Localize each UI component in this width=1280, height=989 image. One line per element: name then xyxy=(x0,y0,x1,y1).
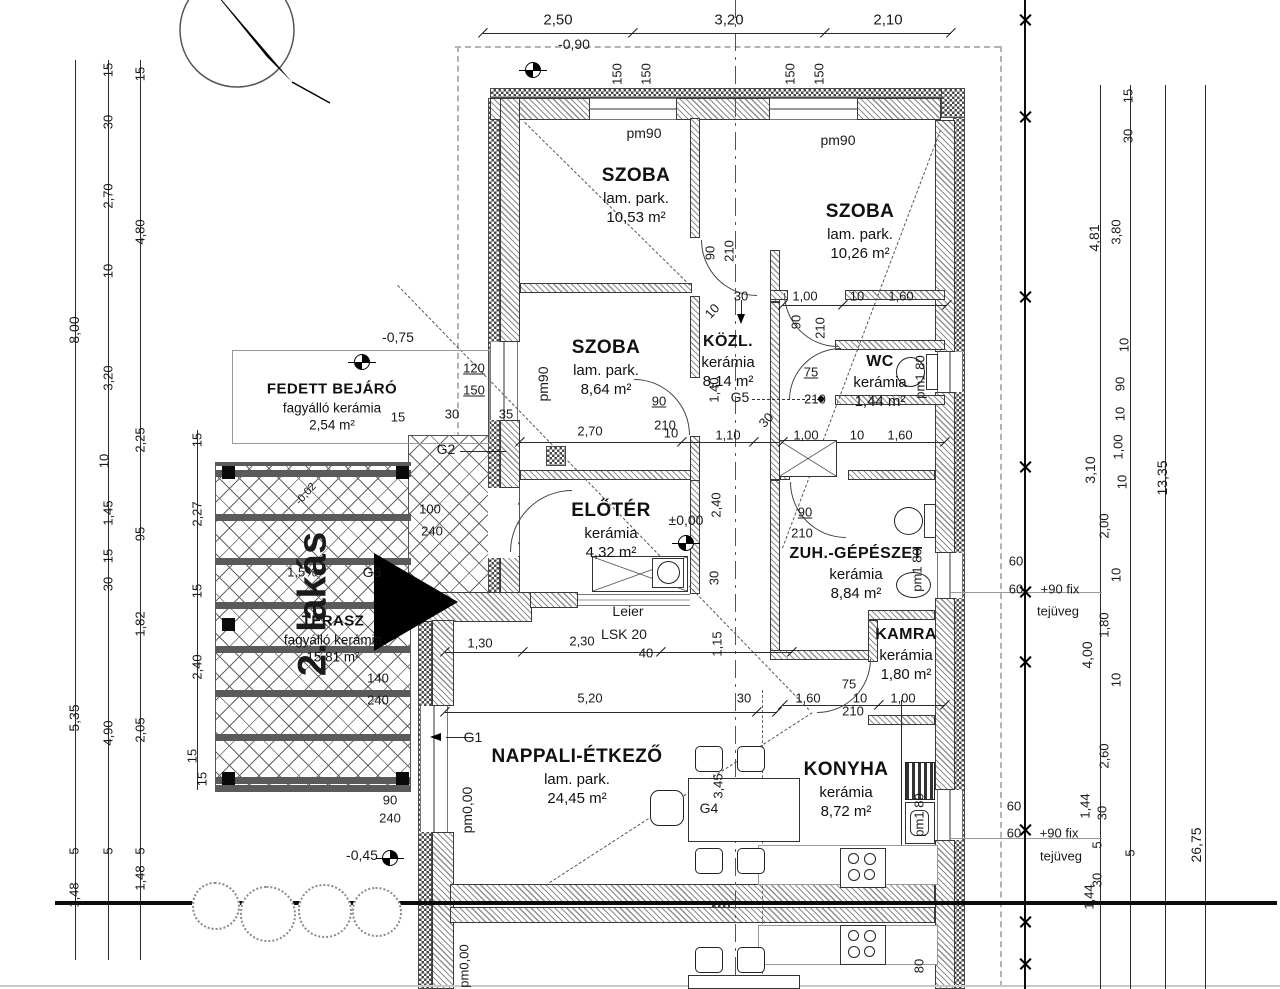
door-size: 240 xyxy=(421,524,443,539)
door-size: 240 xyxy=(379,811,401,826)
dim: 1,60 xyxy=(887,428,912,443)
dim: 2,30 xyxy=(569,634,594,649)
dim: 5 xyxy=(101,847,116,854)
level: -0,45 xyxy=(346,847,378,863)
window-id: pm90 xyxy=(535,366,551,401)
dim: 2,25 xyxy=(133,427,148,452)
dim: 4,90 xyxy=(101,720,116,745)
dim: 10 xyxy=(850,428,864,443)
girder: G5 xyxy=(731,389,750,405)
dim: 1,10 xyxy=(715,428,740,443)
dim: 30 xyxy=(445,407,459,422)
dim: 90 xyxy=(1113,377,1128,391)
dim: 10 xyxy=(1117,338,1132,352)
dim: 2,50 xyxy=(543,12,572,29)
window-height: 150 xyxy=(639,63,654,85)
dim: 3,80 xyxy=(1109,219,1124,244)
window-id: pm0,00 xyxy=(457,944,472,987)
glass-note: 60 xyxy=(1009,582,1023,597)
window-id: pm1 80 xyxy=(913,355,928,398)
dim: 1,30 xyxy=(467,636,492,651)
door-size: 140 xyxy=(367,671,389,686)
dim: 1,00 xyxy=(793,428,818,443)
level: -0,90 xyxy=(558,36,590,52)
dim: 30 xyxy=(707,571,722,585)
door-size: 90 xyxy=(798,505,812,520)
glass-note: +90 fix xyxy=(1041,582,1080,597)
dim: 4,00 xyxy=(1079,641,1095,668)
door-size: 90 xyxy=(383,793,397,808)
door-size: 210 xyxy=(722,240,737,262)
window-height: 150 xyxy=(783,63,798,85)
window-id: pm1 80 xyxy=(912,793,927,836)
level: -0,02 xyxy=(293,481,319,508)
girder: G2 xyxy=(437,441,456,457)
dim: 3,20 xyxy=(714,12,743,29)
dim: 10 xyxy=(850,289,864,304)
dim: 15 xyxy=(185,749,200,763)
door-size: 75 xyxy=(842,677,856,692)
dim: 2,00 xyxy=(1097,513,1112,538)
floor-plan-canvas: SZOBA lam. park. 10,53 m² SZOBA lam. par… xyxy=(0,0,1280,989)
girder: G4 xyxy=(700,800,719,816)
lintel: 40 xyxy=(639,646,653,661)
window-height: 150 xyxy=(610,63,625,85)
dim: 1,48 xyxy=(133,865,148,890)
door-size: 210 xyxy=(804,392,826,407)
dim: 5 xyxy=(133,847,148,854)
dim: 2,27 xyxy=(190,501,205,526)
dim: 13,35 xyxy=(1154,460,1170,495)
window-height: 150 xyxy=(812,63,827,85)
door-size: 100 xyxy=(419,502,441,517)
dim: 5 xyxy=(67,847,82,854)
window-id: 80 xyxy=(912,959,927,973)
dim: 10 xyxy=(853,691,867,706)
dim: 1,00 xyxy=(792,289,817,304)
dim: 15 xyxy=(133,67,148,81)
dim: 30 xyxy=(734,289,748,304)
dim: 2,60 xyxy=(1097,743,1112,768)
dim: 30 xyxy=(737,691,751,706)
dim: 15 xyxy=(190,584,205,598)
dim: 1,00 xyxy=(890,691,915,706)
dim: 2,40 xyxy=(709,492,724,517)
dim: 15 xyxy=(101,63,116,77)
dim: 1,44 xyxy=(1078,793,1093,818)
annotation-layer: 2,503,202,10-0,9015015015015015302,70103… xyxy=(0,0,1280,989)
door-size: 90 xyxy=(703,246,718,260)
dim: 10 xyxy=(1113,407,1128,421)
dim: 3,10 xyxy=(1082,456,1098,483)
dim: 30 xyxy=(756,410,777,431)
glass-note: 60 xyxy=(1007,799,1021,814)
dim: 26,75 xyxy=(1188,827,1204,862)
dim: 2,40 xyxy=(190,654,205,679)
dim: 10 xyxy=(702,301,723,322)
door-size: 75 xyxy=(804,365,818,380)
dim: 1,40 xyxy=(707,377,722,402)
door-size: 210 xyxy=(842,704,864,719)
dim: 1,80 xyxy=(1097,612,1112,637)
door-size: 90 xyxy=(789,315,804,329)
dim: 2,70 xyxy=(101,183,116,208)
dim: 15 xyxy=(190,433,205,447)
dim: 30 xyxy=(101,577,116,591)
dim: 3,45 xyxy=(711,773,726,798)
dim: 1,44 xyxy=(1082,884,1097,909)
girder: G1 xyxy=(464,729,483,745)
dim: 1,00 xyxy=(1111,434,1126,459)
dim: 5 xyxy=(1090,841,1105,848)
dim: 1,82 xyxy=(133,611,148,636)
dim: 30 xyxy=(1121,129,1136,143)
window-id: pm0,00 xyxy=(459,787,475,834)
door-size: 240 xyxy=(367,693,389,708)
glass-note: 60 xyxy=(1009,554,1023,569)
dim: 15 xyxy=(391,410,405,425)
dim: 10 xyxy=(97,454,112,468)
window-id: pm90 xyxy=(820,132,855,148)
dim: 10 xyxy=(1109,568,1124,582)
dim: 10 xyxy=(101,264,116,278)
window-id: pm1 80 xyxy=(910,548,925,591)
dim: 1,60 xyxy=(795,691,820,706)
dim: 30 xyxy=(101,115,116,129)
dim: 5 xyxy=(1123,849,1138,856)
dim: 5,20 xyxy=(577,691,602,706)
lintel: Leier xyxy=(612,603,643,619)
dim: 15 xyxy=(195,772,210,786)
door-size: 90 xyxy=(652,394,666,409)
door-size: 210 xyxy=(791,526,813,541)
door-size: 210 xyxy=(813,317,828,339)
dim: 8,00 xyxy=(66,316,82,343)
dim: 10 xyxy=(1115,475,1130,489)
dim: 10 xyxy=(1109,673,1124,687)
dim: 35 xyxy=(499,407,513,422)
door-size: 210 xyxy=(654,418,676,433)
dim: 1,45 xyxy=(101,500,116,525)
dim: 150 xyxy=(463,383,485,398)
dim: 1,15 xyxy=(710,631,725,656)
glass-note: 60 xyxy=(1007,826,1021,841)
dim: 4,81 xyxy=(1086,224,1102,251)
level: ±0,00 xyxy=(669,512,704,528)
dim: 15 xyxy=(101,549,116,563)
window-id: pm90 xyxy=(626,125,661,141)
dim: 1,60 xyxy=(888,289,913,304)
dim: 4,80 xyxy=(133,219,148,244)
glass-note: tejüveg xyxy=(1040,849,1082,864)
unit-label: 2. lakás xyxy=(291,532,336,677)
dim: 5,35 xyxy=(66,704,82,731)
glass-note: +90 fix xyxy=(1040,826,1079,841)
lintel: LSK 20 xyxy=(601,626,647,642)
glass-note: tejüveg xyxy=(1037,604,1079,619)
dim: 2,10 xyxy=(873,12,902,29)
dim: 120 xyxy=(463,361,485,376)
dim: 2,70 xyxy=(577,424,602,439)
level: -0,75 xyxy=(382,329,414,345)
dim: 15 xyxy=(1121,89,1136,103)
dim: 95 xyxy=(133,527,148,541)
dim: 3,20 xyxy=(101,365,116,390)
dim: 30 xyxy=(1095,806,1110,820)
dim: 1,48 xyxy=(67,882,82,907)
dim: 2,05 xyxy=(133,717,148,742)
girder: G3 xyxy=(363,564,382,580)
